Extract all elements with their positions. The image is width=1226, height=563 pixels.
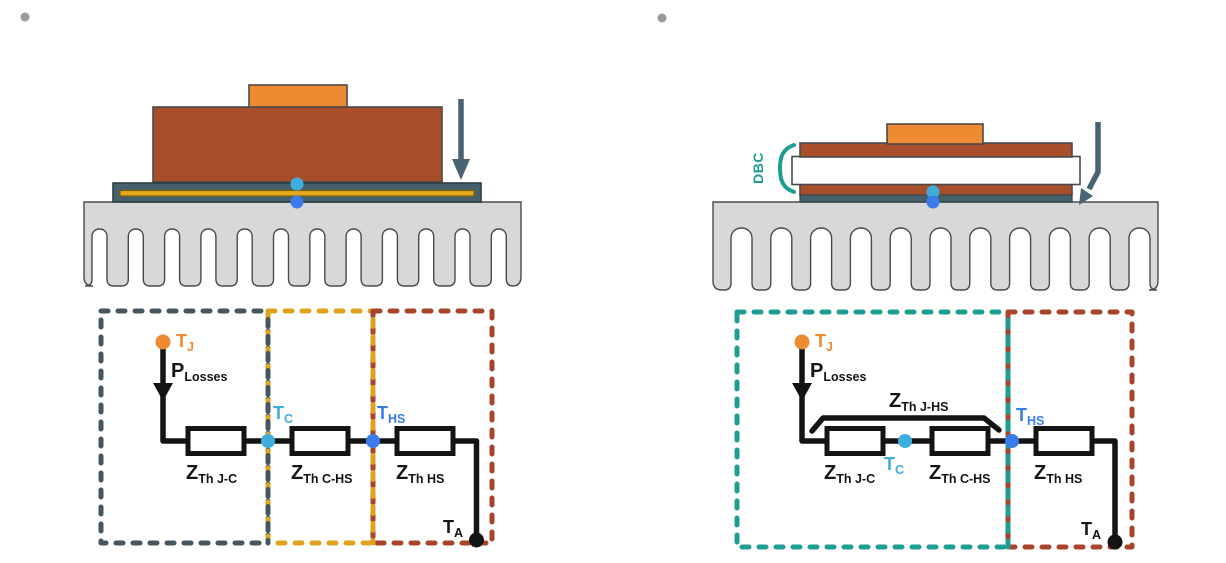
left-node-tj: [156, 335, 171, 350]
left-case-point: [291, 178, 304, 191]
right-thermal-circuit: TJ PLosses ZTh J-HS ZTh J-C TC ZTh C-HS …: [737, 312, 1132, 550]
left-figure: TJ PLosses ZTh J-C TC ZTh C-HS THS ZTh H…: [84, 85, 521, 548]
left-resistor-z-hs: [397, 429, 453, 454]
left-heatsink: [84, 202, 521, 286]
slide-canvas: TJ PLosses ZTh J-C TC ZTh C-HS THS ZTh H…: [0, 0, 1226, 563]
right-label-tj: TJ: [815, 331, 833, 354]
left-resistor-z-jc: [188, 429, 244, 454]
right-label-plosses: PLosses: [810, 360, 866, 384]
left-label-z-chs: ZTh C-HS: [291, 462, 353, 486]
right-chip: [887, 124, 983, 144]
right-resistor-z-jc: [827, 429, 883, 454]
left-node-ta: [469, 533, 484, 548]
left-label-ths: THS: [377, 403, 405, 426]
right-label-z-jc: ZTh J-C: [824, 462, 875, 486]
right-top-copper: [800, 143, 1072, 157]
right-physical-stack: DBC: [713, 122, 1158, 290]
right-heatsink-point: [927, 196, 940, 209]
left-module-body: [153, 107, 442, 182]
tj-sub: J: [187, 340, 194, 354]
dbc-callout: DBC: [750, 145, 794, 192]
right-heatsink: [713, 202, 1158, 290]
left-physical-stack: [84, 85, 521, 286]
right-label-z-jhs: ZTh J-HS: [889, 390, 948, 414]
right-ceramic-layer: [792, 157, 1080, 185]
right-node-ths: [1005, 434, 1019, 448]
left-label-ta: TA: [443, 517, 463, 540]
left-label-tc: TC: [273, 403, 293, 426]
arrow-head-icon: [452, 159, 470, 180]
right-node-tj: [795, 335, 810, 350]
left-node-tc: [261, 434, 275, 448]
thermal-diagram: TJ PLosses ZTh J-C TC ZTh C-HS THS ZTh H…: [0, 0, 1226, 563]
right-node-tc: [898, 434, 912, 448]
bullet-marker-right: [658, 14, 667, 23]
left-power-arrow-icon: [153, 383, 173, 401]
left-mounting-arrow: [452, 99, 470, 180]
tj-base: T: [176, 331, 187, 351]
right-resistor-z-hs: [1036, 429, 1092, 454]
right-power-arrow-icon: [792, 383, 812, 401]
left-resistor-z-chs: [292, 429, 348, 454]
right-label-ths: THS: [1016, 405, 1044, 428]
right-label-z-chs: ZTh C-HS: [929, 462, 991, 486]
left-label-tj: TJ: [176, 331, 194, 354]
right-mounting-arrow: [1079, 122, 1098, 205]
left-thermal-circuit: TJ PLosses ZTh J-C TC ZTh C-HS THS ZTh H…: [101, 311, 492, 548]
left-tim-strip: [120, 191, 474, 197]
right-resistor-z-chs: [932, 429, 988, 454]
left-heatsink-point: [291, 196, 304, 209]
right-label-z-hs: ZTh HS: [1034, 462, 1082, 486]
left-label-z-hs: ZTh HS: [396, 462, 444, 486]
left-label-z-jc: ZTh J-C: [186, 462, 237, 486]
right-label-ta: TA: [1081, 519, 1101, 542]
right-label-tc: TC: [884, 454, 904, 477]
dbc-label: DBC: [750, 152, 766, 184]
right-node-ta: [1108, 535, 1123, 550]
left-chip: [249, 85, 347, 107]
left-label-plosses: PLosses: [171, 360, 227, 384]
left-node-ths: [366, 434, 380, 448]
bullet-marker-left: [21, 13, 30, 22]
right-figure: DBC TJ PLosses: [713, 122, 1158, 550]
plosses-base: P: [171, 360, 184, 382]
plosses-sub: Losses: [184, 370, 227, 384]
